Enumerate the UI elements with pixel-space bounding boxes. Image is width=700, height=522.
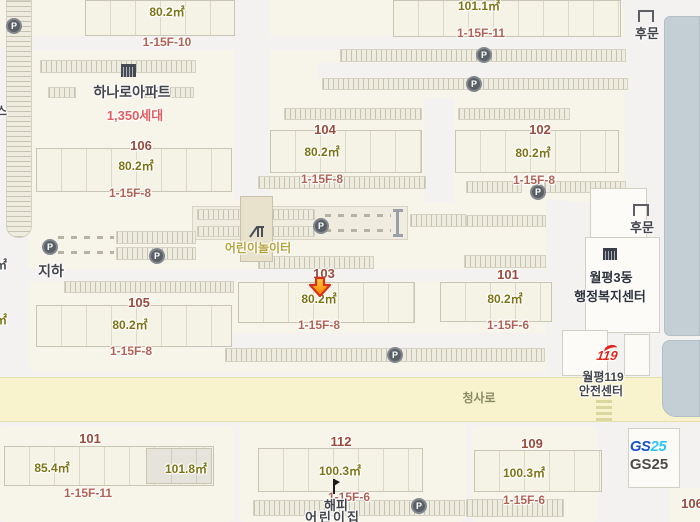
floors-label: 1-15F-8 [109,187,151,201]
edge-partial-label: ㎡ [0,259,7,273]
gs25-label[interactable]: GS25 [630,456,668,473]
floors-label: 1-15F-8 [513,174,555,188]
parking-icon: P [6,18,22,34]
floors-label: 1-15F-11 [457,27,505,41]
parking-dashes [325,229,391,232]
gate-icon [638,10,654,22]
area-label: 100.3㎡ [319,465,361,479]
parking-strip [466,215,546,227]
selected-building-marker[interactable] [306,276,334,298]
back-gate-top-label: 후문 [635,27,659,42]
lane [234,0,270,200]
daycare-label-clipped: 어린이집 [305,511,361,522]
edge-partial-label: ㎡ [0,314,7,328]
area-label: 80.2㎡ [487,293,522,307]
building-number[interactable]: 102 [529,123,551,138]
parking-divider [393,209,403,237]
building-number[interactable]: 101 [497,268,519,283]
area-label: 85.4㎡ [34,462,69,476]
building-number[interactable]: 105 [128,296,150,311]
building-east-road [662,340,700,417]
parking-icon: P [411,498,427,514]
area-label: 80.2㎡ [515,147,550,161]
complex-name-label[interactable]: 하나로아파트 [93,84,170,100]
map-canvas[interactable]: P P P P P P P P P 후문 후문 80.2㎡ 1-15F-10 1… [0,0,700,522]
floors-label: 1-15F-6 [487,319,529,333]
central-parking-lot [192,206,408,240]
fire-station-label[interactable]: 안전센터 [579,385,623,399]
lane [424,98,454,202]
playground-label: 어린이놀이터 [225,242,291,256]
building-104 [270,130,422,173]
floors-label: 1-15F-10 [143,36,192,50]
floors-label: 1-15F-11 [64,487,112,501]
building-number[interactable]: 101 [79,432,101,447]
households-label: 1,350세대 [107,109,163,124]
building-number[interactable]: 109 [521,437,543,452]
area-label: 80.2㎡ [118,160,153,174]
parking-dashes [58,251,114,254]
community-center-label[interactable]: 월평3동 [589,271,632,286]
parking-dashes [325,214,391,217]
underground-label: 지하 [38,263,64,279]
area-label: 80.2㎡ [304,146,339,160]
gate-icon [633,204,649,216]
floors-label: 1-15F-8 [298,319,340,333]
daycare-icon [329,477,340,495]
area-label: 101.1㎡ [458,0,500,14]
lane [28,36,626,50]
parking-strip [40,60,196,73]
apartment-icon [121,64,136,77]
road-name-label: 청사로 [462,392,495,406]
floors-label: 1-15F-8 [301,173,343,187]
building-number[interactable]: 106 [681,497,700,512]
parking-icon: P [313,218,329,234]
playground-icon [248,224,266,238]
parking-icon: P [387,347,403,363]
parking-icon: P [42,239,58,255]
parking-strip [284,108,422,120]
community-center-label[interactable]: 행정복지센터 [574,290,646,305]
parking-strip [225,348,545,362]
parking-strip [116,231,196,244]
edge-partial-label: 스 [0,105,7,119]
floors-label: 1-15F-8 [110,345,152,359]
area-label: 80.2㎡ [112,319,147,333]
crosswalk [596,399,612,421]
parking-icon: P [476,47,492,63]
building-number[interactable]: 106 [130,139,152,154]
large-building-east [664,16,700,336]
area-label: 80.2㎡ [149,6,184,20]
back-gate-mid-label: 후문 [630,221,654,236]
parking-strip [6,0,32,238]
floors-label: 1-15F-6 [503,494,545,508]
parking-strip [458,108,570,120]
building-number[interactable]: 104 [314,123,336,138]
area-label: 101.8㎡ [165,463,207,477]
parking-icon: P [149,248,165,264]
fire-station-building [624,334,650,376]
building-top-right [393,0,621,37]
building-number[interactable]: 112 [331,435,352,450]
gs25-logo[interactable]: GS25 [630,438,666,455]
parking-strip [48,87,76,98]
area-label: 100.3㎡ [503,467,545,481]
gs25-logo-gs: GS [630,438,651,455]
fire-station-logo: 119 [596,349,619,364]
parking-dashes [58,236,114,239]
parking-strip [64,281,234,293]
parking-icon: P [466,76,482,92]
fire-station-label[interactable]: 월평119 [582,371,623,385]
government-building-icon [603,248,617,260]
gs25-logo-25: 25 [651,438,667,455]
lane [190,333,560,348]
parking-strip [410,214,466,227]
